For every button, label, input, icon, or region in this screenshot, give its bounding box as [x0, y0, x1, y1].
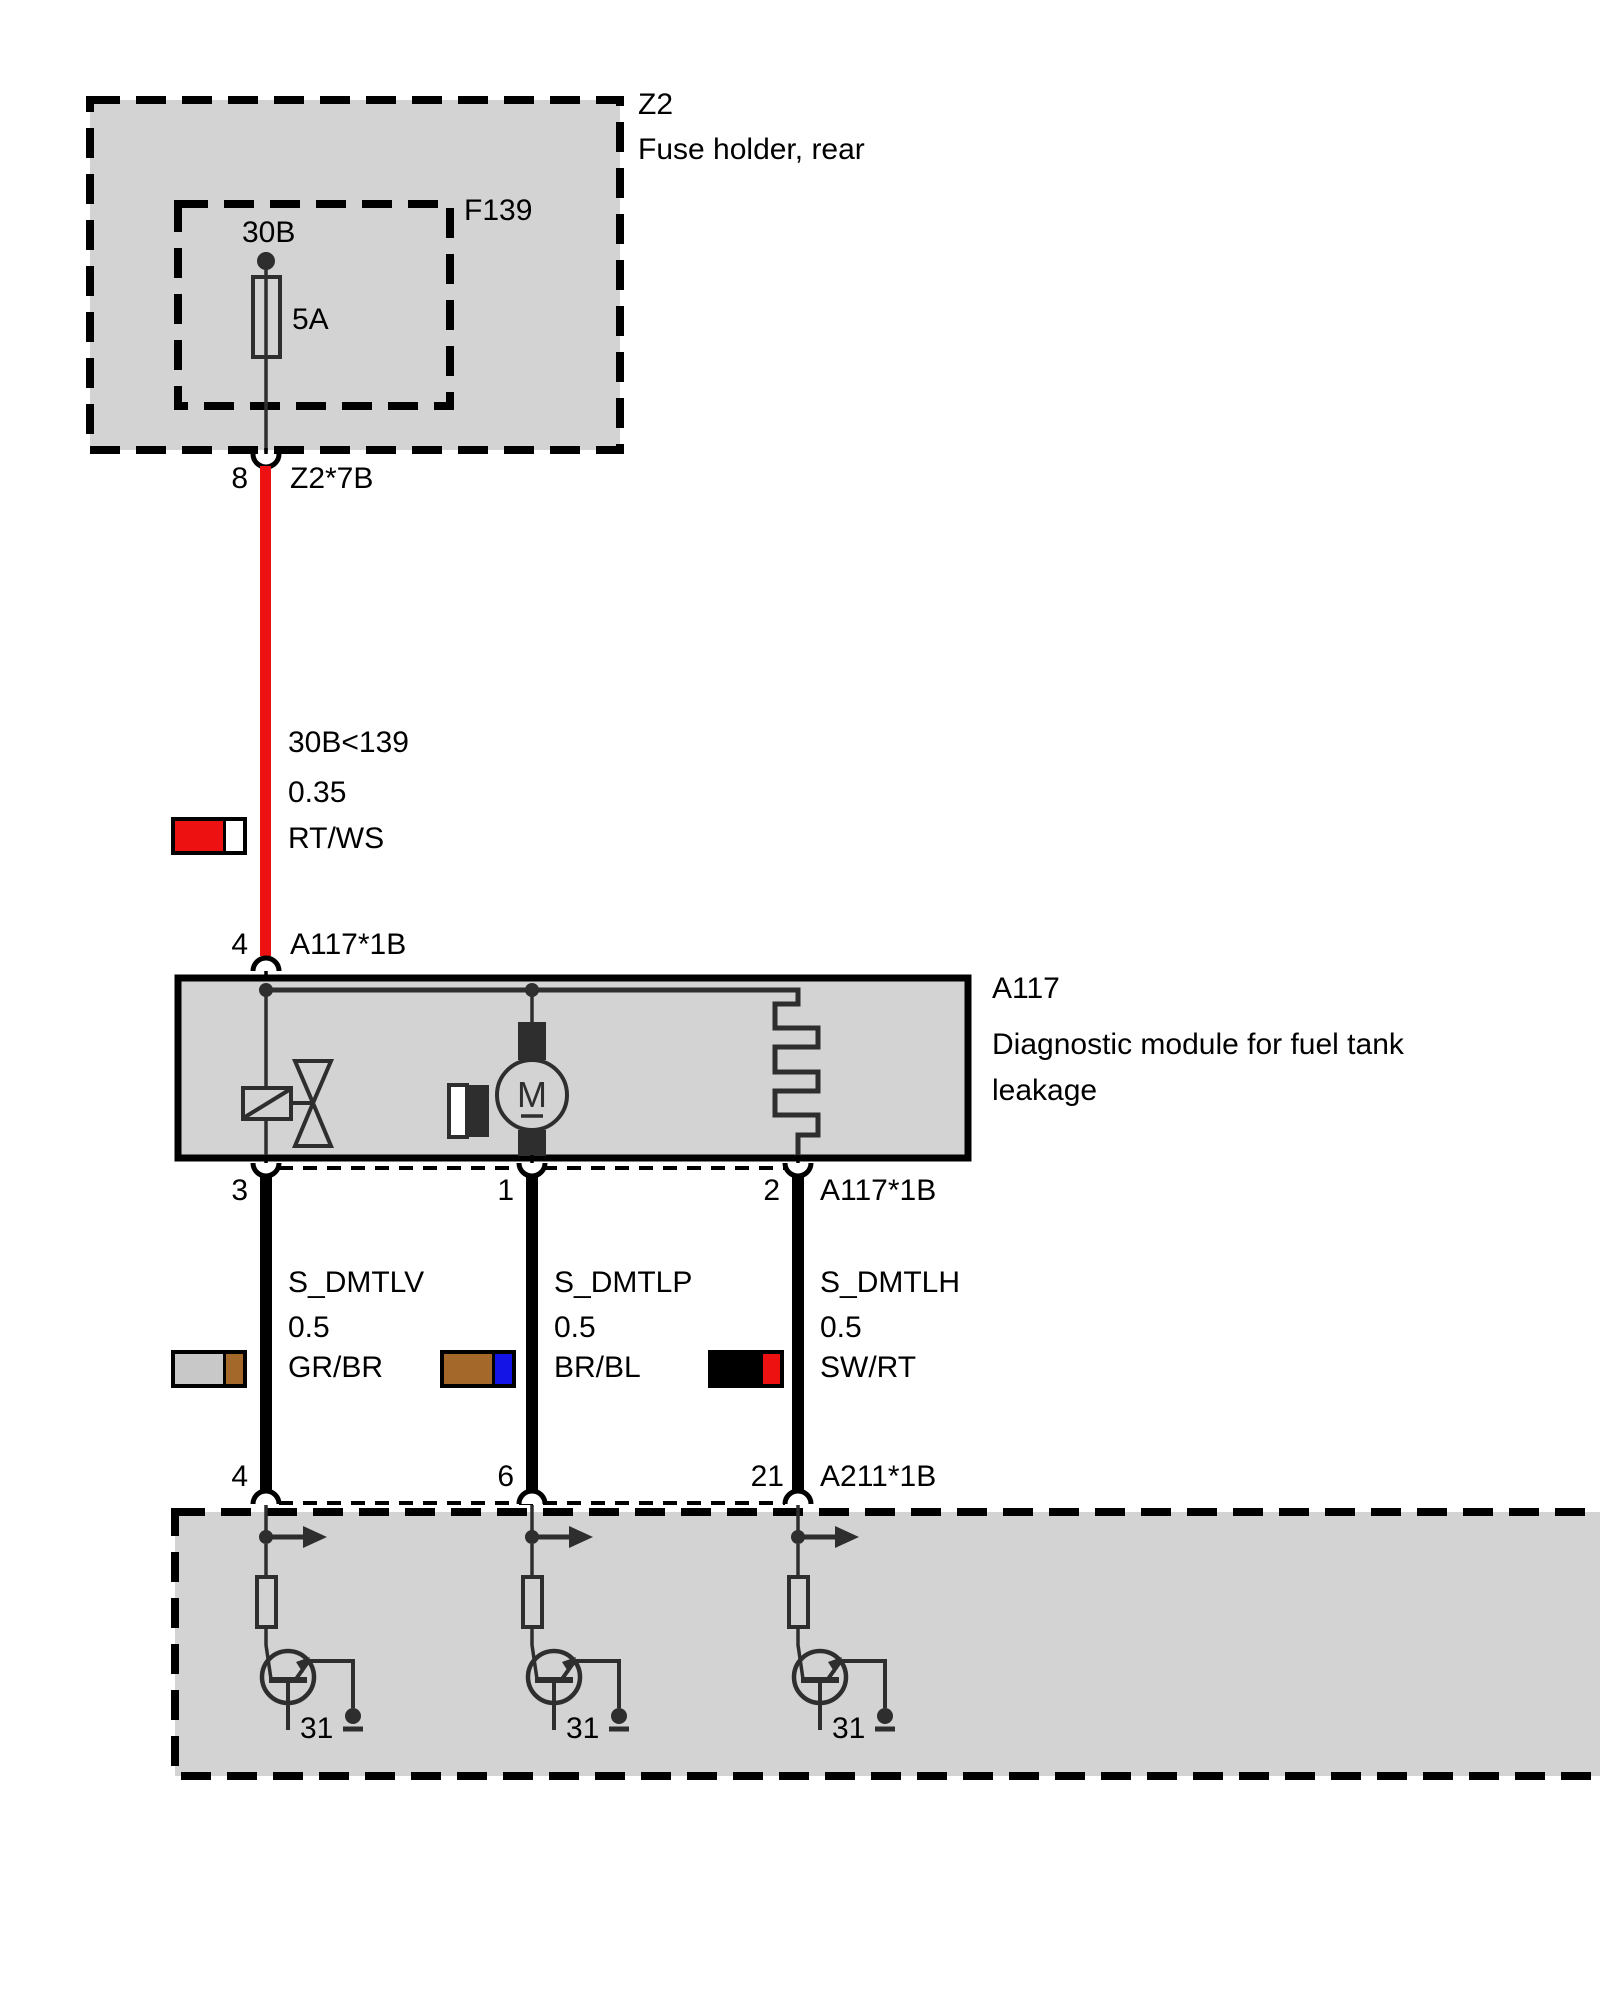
signal-gauge-3: 0.5	[820, 1311, 862, 1344]
signal-name-2: S_DMTLP	[554, 1266, 692, 1299]
signal-wire-2	[526, 1176, 538, 1491]
signal-wire-3	[792, 1176, 804, 1491]
terminal-dot	[257, 252, 275, 270]
signal-code-2: BR/BL	[554, 1351, 641, 1384]
wiring-diagram: M	[0, 0, 1600, 2000]
pin-4-label: 4	[192, 928, 248, 961]
fuse-ref-label: F139	[464, 194, 532, 227]
connector-a211-1b-label: A211*1B	[820, 1460, 936, 1493]
wire-color-swatch	[440, 1350, 516, 1388]
swatch-right	[223, 821, 243, 851]
control-unit-box	[175, 1512, 1600, 1776]
connector-plug-icon	[519, 1491, 545, 1504]
gauge-label: 0.35	[288, 776, 346, 809]
diagram-graphics: M	[0, 0, 1600, 2000]
pin-1-label: 1	[458, 1174, 514, 1207]
swatch-right	[760, 1354, 780, 1384]
brush-icon	[449, 1085, 489, 1137]
pin-3-label: 3	[192, 1174, 248, 1207]
fuse-holder-box	[90, 100, 620, 450]
swatch-left	[444, 1354, 492, 1384]
fuse-rating-label: 5A	[292, 303, 329, 336]
signal-name-3: S_DMTLH	[820, 1266, 960, 1299]
pin-2-label: 2	[724, 1174, 780, 1207]
swatch-left	[175, 821, 223, 851]
connector-a117-1b-bottom-label: A117*1B	[820, 1174, 936, 1207]
terminal-30b-label: 30B	[242, 216, 295, 249]
pin-6-label: 6	[458, 1460, 514, 1493]
main-supply-wire	[260, 466, 271, 956]
module-desc-line2: leakage	[992, 1074, 1097, 1107]
pin-8-label: 8	[192, 462, 248, 495]
ground-31-label: 31	[300, 1712, 333, 1745]
signal-wire-1	[260, 1176, 272, 1491]
signal-gauge-2: 0.5	[554, 1311, 596, 1344]
pin-21-label: 21	[694, 1460, 784, 1493]
pin-4b-label: 4	[192, 1460, 248, 1493]
signal-gauge-1: 0.5	[288, 1311, 330, 1344]
connector-plug-icon	[253, 1491, 279, 1504]
connector-z2-7b-label: Z2*7B	[290, 462, 373, 495]
swatch-right	[492, 1354, 512, 1384]
wire-color-swatch	[171, 817, 247, 855]
swatch-left	[712, 1354, 760, 1384]
signal-name-1: S_DMTLV	[288, 1266, 424, 1299]
signal-code-1: GR/BR	[288, 1351, 383, 1384]
circuit-label: 30B<139	[288, 726, 409, 759]
wire-color-swatch	[708, 1350, 784, 1388]
connector-plug-icon	[785, 1491, 811, 1504]
ground-31-label: 31	[566, 1712, 599, 1745]
module-ref-label: A117	[992, 972, 1060, 1005]
ground-31-label: 31	[832, 1712, 865, 1745]
connector-a117-1b-top-label: A117*1B	[290, 928, 406, 961]
color-code-label: RT/WS	[288, 822, 384, 855]
module-desc-line1: Diagnostic module for fuel tank	[992, 1028, 1404, 1061]
fuse-holder-desc: Fuse holder, rear	[638, 133, 865, 166]
fuse-holder-ref: Z2	[638, 88, 673, 121]
signal-code-3: SW/RT	[820, 1351, 916, 1384]
swatch-left	[175, 1354, 223, 1384]
wire-color-swatch	[171, 1350, 247, 1388]
swatch-right	[223, 1354, 243, 1384]
motor-letter: M	[517, 1074, 547, 1115]
